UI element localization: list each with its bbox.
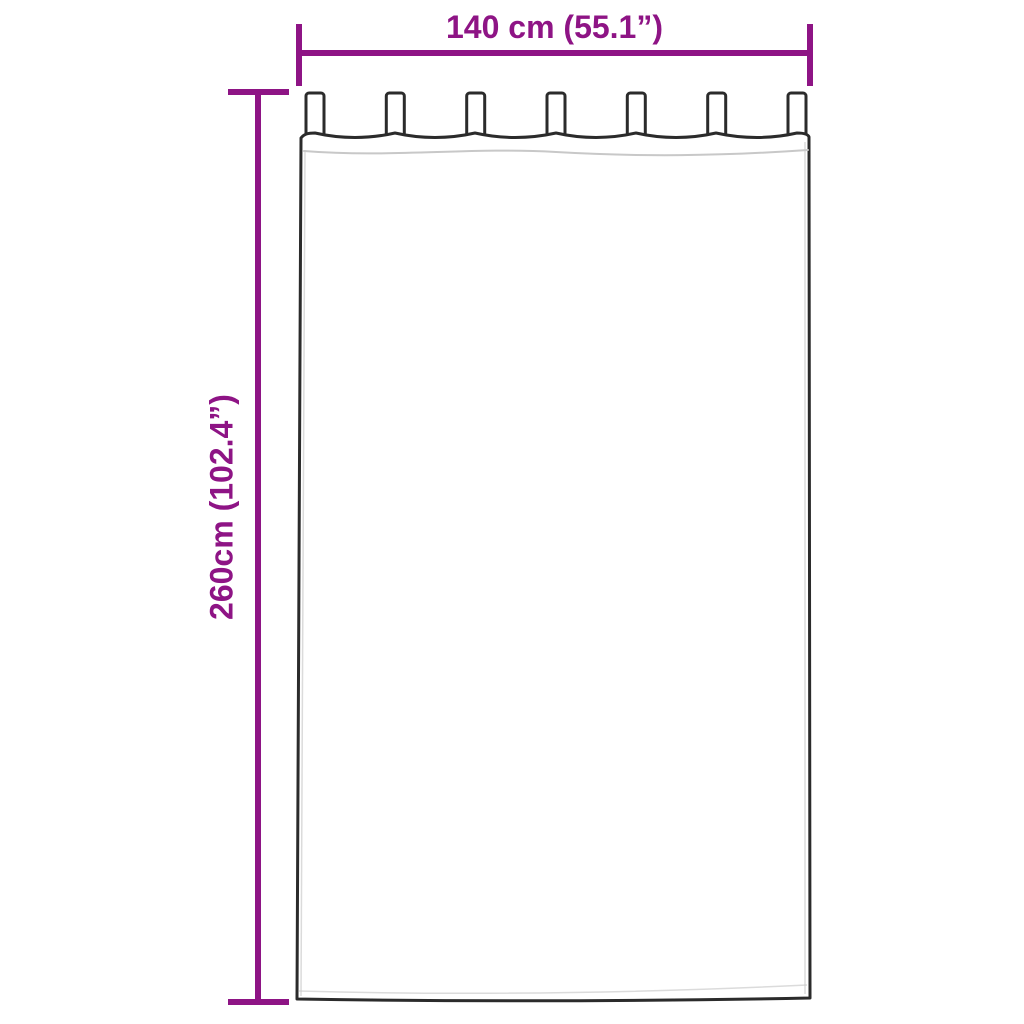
curtain-illustration — [0, 0, 1024, 1024]
height-dimension-cap-bottom — [228, 999, 289, 1005]
height-dimension-cap-top — [228, 89, 289, 95]
width-dimension-line — [299, 50, 810, 56]
height-dimension-label: 260cm (102.4”) — [204, 394, 241, 620]
curtain-panel — [297, 133, 810, 1001]
product-dimension-diagram: 140 cm (55.1”) 260cm (102.4”) — [0, 0, 1024, 1024]
width-dimension-label: 140 cm (55.1”) — [299, 6, 810, 48]
height-dimension-line — [255, 92, 261, 1002]
